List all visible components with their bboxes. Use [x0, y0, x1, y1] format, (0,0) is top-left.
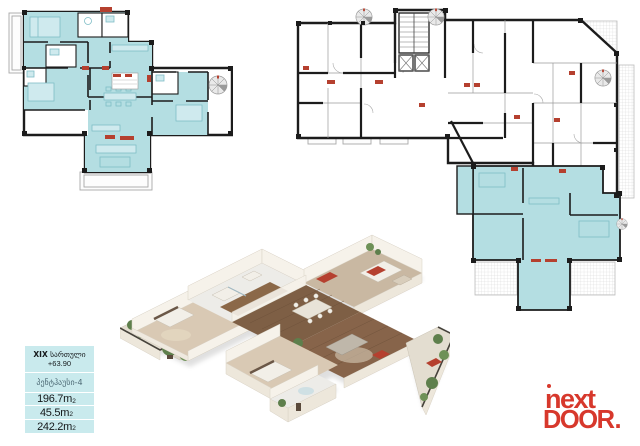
unit-type-label: პენტჰაუსი-4 — [25, 373, 94, 393]
render-balcony-right — [406, 327, 450, 415]
floor-header: XIX სართული +63.90 — [25, 346, 94, 373]
logo-n-dot-icon — [547, 384, 551, 388]
building-spiral-stair-2 — [428, 8, 444, 25]
elevation-label: +63.90 — [48, 359, 71, 368]
unit-legend-table — [112, 73, 138, 89]
apartment-3d-render — [120, 215, 450, 446]
logo-word-next: next — [543, 388, 638, 410]
unit-spiral-stair — [209, 76, 227, 95]
floor-label: XIX სართული — [33, 350, 85, 359]
unit-info-panel: XIX სართული +63.90 პენტჰაუსი-4 196.7m2 4… — [25, 346, 94, 433]
area-total: 196.7m2 — [25, 393, 94, 406]
floorplan-brochure-page: XIX სართული +63.90 პენტჰაუსი-4 196.7m2 4… — [0, 0, 640, 446]
unit-floor-plan-2d — [8, 5, 233, 195]
area-terrace: 45.5m2 — [25, 406, 94, 419]
logo-period: . — [615, 410, 621, 431]
area-sum: 242.2m2 — [25, 420, 94, 433]
building-spiral-stair-3 — [595, 69, 611, 86]
logo-next-text: next — [545, 384, 595, 414]
nextdoor-logo: next DOOR . — [543, 388, 638, 440]
unit-spiral-stair-small — [617, 218, 628, 229]
